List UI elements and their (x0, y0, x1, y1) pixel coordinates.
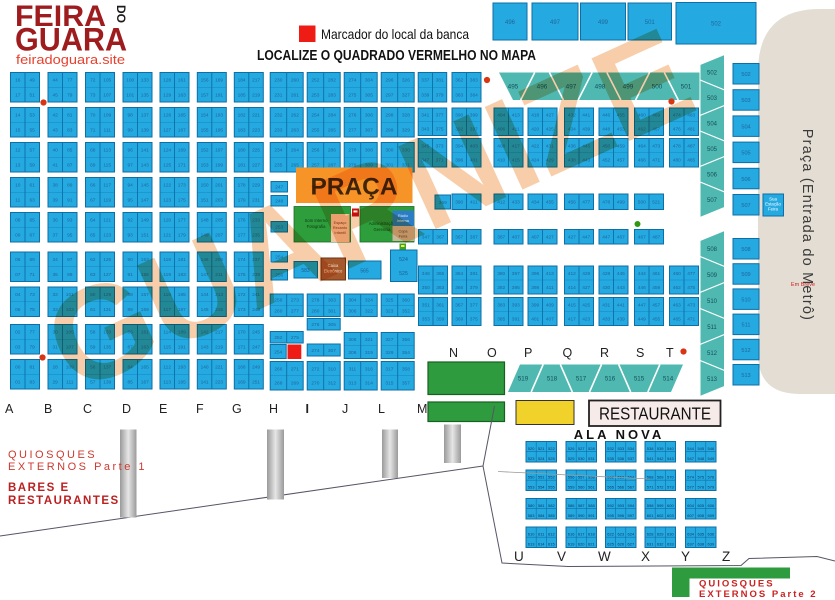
svg-text:Praça (Entrada do Metrô): Praça (Entrada do Metrô) (799, 129, 815, 321)
svg-text:73: 73 (90, 92, 96, 98)
svg-text:168: 168 (238, 365, 246, 371)
svg-text:603: 603 (667, 513, 674, 518)
svg-text:81: 81 (30, 365, 36, 371)
svg-text:53: 53 (30, 113, 36, 119)
svg-text:154: 154 (201, 113, 209, 119)
svg-text:431: 431 (602, 302, 610, 308)
svg-text:427: 427 (582, 285, 590, 291)
svg-text:59: 59 (30, 162, 36, 168)
svg-text:232: 232 (274, 113, 282, 119)
svg-text:260: 260 (291, 78, 299, 84)
svg-text:55: 55 (30, 127, 36, 133)
svg-text:447: 447 (582, 235, 590, 241)
svg-text:274: 274 (348, 78, 356, 84)
svg-text:524: 524 (538, 456, 545, 461)
svg-text:97: 97 (67, 257, 73, 263)
svg-text:591: 591 (588, 513, 595, 518)
svg-text:38: 38 (53, 183, 59, 189)
svg-text:365: 365 (436, 271, 444, 277)
svg-text:183: 183 (238, 127, 246, 133)
svg-text:537: 537 (628, 456, 635, 461)
svg-text:544: 544 (687, 446, 694, 451)
svg-text:171: 171 (178, 162, 186, 168)
svg-text:460: 460 (673, 271, 681, 277)
svg-text:475: 475 (687, 285, 695, 291)
svg-text:LOCALIZE O QUADRADO VERMELHO N: LOCALIZE O QUADRADO VERMELHO NO MAPA (257, 48, 536, 64)
svg-text:551: 551 (538, 474, 545, 479)
svg-text:387: 387 (497, 235, 505, 241)
svg-text:135: 135 (141, 92, 149, 98)
svg-text:543: 543 (667, 456, 674, 461)
svg-text:235: 235 (274, 162, 282, 168)
svg-text:44: 44 (53, 78, 59, 84)
svg-text:95: 95 (128, 197, 134, 203)
svg-text:529: 529 (568, 456, 575, 461)
svg-text:566: 566 (617, 485, 624, 490)
svg-text:F: F (196, 402, 204, 416)
svg-text:193: 193 (215, 113, 223, 119)
svg-text:13: 13 (15, 162, 21, 168)
svg-text:65: 65 (90, 232, 96, 238)
svg-text:521: 521 (652, 200, 660, 206)
svg-text:305: 305 (365, 92, 373, 98)
svg-text:611: 611 (538, 531, 545, 536)
svg-text:57: 57 (30, 148, 36, 154)
svg-text:M: M (417, 402, 427, 416)
svg-text:503: 503 (741, 98, 750, 104)
svg-text:326: 326 (402, 78, 410, 84)
svg-text:325: 325 (385, 297, 393, 303)
svg-text:512: 512 (741, 348, 750, 354)
svg-text:263: 263 (291, 127, 299, 133)
svg-text:515: 515 (634, 376, 645, 383)
svg-text:269: 269 (291, 381, 299, 387)
svg-text:353: 353 (422, 316, 430, 322)
svg-text:07: 07 (15, 272, 21, 278)
svg-text:98: 98 (128, 113, 134, 119)
svg-text:12: 12 (15, 148, 21, 154)
svg-text:09: 09 (15, 232, 21, 238)
svg-text:201: 201 (215, 183, 223, 189)
svg-text:311: 311 (349, 366, 357, 372)
svg-text:72: 72 (90, 78, 96, 84)
svg-text:231: 231 (274, 92, 282, 98)
svg-text:163: 163 (178, 92, 186, 98)
svg-text:446: 446 (638, 285, 646, 291)
svg-text:D: D (122, 402, 131, 416)
svg-text:512: 512 (707, 351, 718, 357)
svg-text:180: 180 (238, 148, 246, 154)
svg-text:143: 143 (141, 162, 149, 168)
svg-text:10: 10 (15, 183, 21, 189)
svg-text:396: 396 (531, 271, 539, 277)
svg-text:123: 123 (163, 197, 171, 203)
svg-text:113: 113 (103, 148, 111, 154)
svg-text:364: 364 (455, 271, 463, 277)
svg-text:101: 101 (126, 92, 134, 98)
svg-text:92: 92 (128, 218, 134, 224)
svg-text:526: 526 (568, 446, 575, 451)
svg-text:427: 427 (568, 235, 576, 241)
svg-text:381: 381 (436, 78, 444, 84)
svg-text:339: 339 (421, 92, 429, 98)
svg-text:433: 433 (602, 316, 610, 322)
svg-text:398: 398 (531, 285, 539, 291)
svg-text:598: 598 (647, 503, 654, 508)
svg-text:96: 96 (128, 148, 134, 154)
svg-text:317: 317 (385, 366, 393, 372)
svg-text:91: 91 (67, 197, 73, 203)
svg-text:375: 375 (470, 316, 478, 322)
svg-text:329: 329 (385, 350, 393, 356)
svg-text:383: 383 (497, 302, 505, 308)
svg-text:05: 05 (15, 307, 21, 313)
svg-text:508: 508 (741, 247, 750, 253)
svg-text:199: 199 (215, 162, 223, 168)
svg-text:381: 381 (470, 271, 478, 277)
svg-text:625: 625 (607, 542, 614, 547)
svg-text:502: 502 (741, 72, 750, 78)
svg-text:542: 542 (657, 456, 664, 461)
svg-text:RESTAURANTE: RESTAURANTE (599, 404, 711, 424)
svg-text:02: 02 (15, 330, 21, 336)
svg-text:511: 511 (707, 325, 717, 331)
svg-text:583: 583 (528, 513, 535, 518)
svg-text:430: 430 (602, 285, 610, 291)
svg-text:06: 06 (15, 257, 21, 263)
svg-text:586: 586 (568, 503, 575, 508)
svg-text:554: 554 (538, 485, 545, 490)
svg-text:584: 584 (538, 513, 545, 518)
svg-text:599: 599 (657, 503, 664, 508)
svg-text:U: U (514, 549, 524, 564)
svg-text:455: 455 (652, 316, 660, 322)
svg-text:428: 428 (602, 271, 610, 277)
svg-text:Z: Z (722, 549, 730, 564)
svg-text:117: 117 (103, 183, 111, 189)
svg-text:385: 385 (497, 316, 505, 322)
svg-text:477: 477 (582, 200, 590, 206)
svg-text:462: 462 (673, 285, 681, 291)
svg-text:161: 161 (178, 78, 186, 84)
svg-text:617: 617 (578, 531, 585, 536)
svg-text:111: 111 (104, 127, 112, 133)
svg-text:01: 01 (15, 379, 21, 385)
svg-text:407: 407 (531, 235, 539, 241)
svg-text:126: 126 (163, 113, 171, 119)
svg-text:552: 552 (548, 474, 555, 479)
svg-text:604: 604 (687, 503, 694, 508)
svg-text:522: 522 (548, 446, 555, 451)
svg-text:514: 514 (663, 376, 674, 383)
svg-text:425: 425 (582, 302, 590, 308)
svg-text:615: 615 (548, 542, 555, 547)
svg-text:550: 550 (528, 474, 535, 479)
svg-text:150: 150 (201, 183, 209, 189)
svg-text:513: 513 (741, 373, 750, 379)
svg-text:506: 506 (707, 173, 718, 179)
svg-text:195: 195 (215, 127, 223, 133)
svg-text:119: 119 (103, 197, 111, 203)
svg-text:254: 254 (274, 349, 282, 355)
svg-text:496: 496 (505, 20, 516, 26)
svg-text:509: 509 (741, 272, 750, 278)
svg-text:632: 632 (657, 542, 664, 547)
svg-text:528: 528 (588, 446, 595, 451)
svg-text:487: 487 (652, 235, 660, 241)
svg-text:366: 366 (455, 285, 463, 291)
svg-text:67: 67 (30, 232, 36, 238)
svg-text:152: 152 (201, 148, 209, 154)
svg-text:29: 29 (53, 379, 59, 385)
svg-text:623: 623 (617, 531, 624, 536)
svg-text:587: 587 (578, 503, 585, 508)
svg-text:631: 631 (647, 542, 654, 547)
svg-text:83: 83 (67, 127, 73, 133)
svg-text:71: 71 (30, 272, 36, 278)
svg-text:357: 357 (402, 381, 410, 387)
svg-text:189: 189 (215, 78, 223, 84)
svg-text:L: L (378, 402, 385, 416)
svg-text:39: 39 (53, 197, 59, 203)
svg-text:270: 270 (311, 381, 319, 387)
svg-text:635: 635 (697, 531, 704, 536)
svg-text:459: 459 (652, 285, 660, 291)
svg-text:637: 637 (687, 542, 694, 547)
svg-text:314: 314 (365, 381, 373, 387)
svg-text:125: 125 (163, 162, 171, 168)
svg-text:17: 17 (15, 92, 21, 98)
svg-text:559: 559 (568, 485, 575, 490)
svg-text:520: 520 (528, 446, 535, 451)
svg-text:79: 79 (30, 344, 36, 350)
svg-text:223: 223 (252, 127, 260, 133)
svg-text:feiradoguara.site: feiradoguara.site (16, 52, 125, 67)
svg-text:613: 613 (528, 542, 535, 547)
svg-text:251: 251 (252, 379, 260, 385)
svg-text:195: 195 (178, 379, 186, 385)
svg-text:575: 575 (697, 474, 704, 479)
svg-text:316: 316 (365, 366, 373, 372)
svg-text:534: 534 (628, 446, 635, 451)
svg-text:261: 261 (291, 92, 299, 98)
svg-text:533: 533 (617, 446, 624, 451)
svg-text:503: 503 (707, 96, 718, 102)
svg-text:37: 37 (53, 232, 59, 238)
svg-text:DO: DO (114, 5, 128, 23)
svg-text:173: 173 (178, 183, 186, 189)
svg-text:577: 577 (687, 485, 694, 490)
svg-text:521: 521 (538, 446, 545, 451)
svg-text:321: 321 (365, 337, 373, 343)
svg-text:306: 306 (348, 350, 356, 356)
svg-text:358: 358 (402, 366, 410, 372)
svg-text:327: 327 (385, 337, 393, 343)
svg-text:277: 277 (348, 127, 356, 133)
svg-text:255: 255 (311, 127, 319, 133)
svg-text:352: 352 (402, 309, 410, 315)
svg-text:337: 337 (421, 78, 429, 84)
svg-text:68: 68 (90, 148, 96, 154)
svg-text:122: 122 (163, 183, 171, 189)
svg-text:612: 612 (548, 531, 555, 536)
svg-text:477: 477 (687, 271, 695, 277)
svg-text:444: 444 (638, 271, 646, 277)
svg-text:221: 221 (215, 365, 223, 371)
svg-text:541: 541 (647, 456, 654, 461)
svg-text:107: 107 (103, 92, 111, 98)
svg-text:369: 369 (455, 316, 463, 322)
svg-text:439: 439 (617, 316, 625, 322)
svg-text:217: 217 (252, 78, 260, 84)
svg-text:45: 45 (53, 92, 59, 98)
svg-text:379: 379 (470, 285, 478, 291)
svg-text:629: 629 (657, 531, 664, 536)
svg-text:223: 223 (215, 379, 223, 385)
svg-text:69: 69 (90, 162, 96, 168)
svg-text:601: 601 (647, 513, 654, 518)
svg-text:536: 536 (617, 456, 624, 461)
svg-text:569: 569 (657, 474, 664, 479)
svg-text:EXTERNOS Parte 2: EXTERNOS Parte 2 (699, 589, 818, 600)
svg-text:407: 407 (512, 235, 520, 241)
svg-text:93: 93 (67, 218, 73, 224)
svg-text:527: 527 (578, 446, 585, 451)
svg-text:427: 427 (546, 235, 554, 241)
svg-text:42: 42 (53, 113, 59, 119)
svg-text:81: 81 (67, 113, 73, 119)
svg-text:348: 348 (422, 271, 430, 277)
svg-text:R: R (600, 346, 609, 360)
svg-text:447: 447 (602, 235, 610, 241)
svg-text:T: T (666, 346, 674, 360)
svg-text:100: 100 (126, 78, 134, 84)
svg-text:525: 525 (548, 456, 555, 461)
svg-text:08: 08 (15, 218, 21, 224)
svg-text:133: 133 (141, 78, 149, 84)
svg-text:139: 139 (141, 127, 149, 133)
svg-text:175: 175 (178, 197, 186, 203)
svg-text:ALA NOVA: ALA NOVA (574, 427, 664, 442)
svg-text:597: 597 (628, 513, 635, 518)
svg-text:636: 636 (708, 531, 715, 536)
svg-text:626: 626 (617, 542, 624, 547)
svg-text:121: 121 (103, 218, 111, 224)
svg-text:401: 401 (531, 316, 539, 322)
svg-text:510: 510 (741, 297, 750, 303)
svg-text:219: 219 (252, 92, 260, 98)
svg-text:Em Breve: Em Breve (791, 282, 815, 288)
svg-text:128: 128 (163, 78, 171, 84)
svg-text:157: 157 (201, 92, 209, 98)
svg-text:367: 367 (455, 302, 463, 308)
svg-text:510: 510 (707, 299, 718, 305)
svg-text:411: 411 (546, 285, 554, 291)
svg-text:275: 275 (291, 335, 299, 341)
svg-text:596: 596 (617, 513, 624, 518)
svg-text:264: 264 (291, 148, 299, 154)
svg-text:137: 137 (141, 113, 149, 119)
svg-text:621: 621 (588, 542, 595, 547)
svg-text:153: 153 (201, 162, 209, 168)
svg-text:548: 548 (697, 456, 704, 461)
svg-text:457: 457 (652, 302, 660, 308)
svg-text:J: J (342, 402, 348, 416)
svg-text:EXTERNOS Parte 1: EXTERNOS Parte 1 (8, 461, 147, 473)
svg-text:85: 85 (67, 148, 73, 154)
svg-text:518: 518 (547, 376, 558, 383)
svg-text:608: 608 (697, 513, 704, 518)
svg-text:36: 36 (53, 218, 59, 224)
svg-text:507: 507 (741, 203, 750, 209)
svg-text:576: 576 (708, 474, 715, 479)
svg-text:296: 296 (385, 78, 393, 84)
svg-text:508: 508 (707, 247, 718, 253)
svg-text:633: 633 (667, 542, 674, 547)
svg-text:540: 540 (667, 446, 674, 451)
svg-text:233: 233 (274, 127, 282, 133)
svg-text:234: 234 (274, 148, 282, 154)
svg-text:11: 11 (15, 197, 20, 203)
svg-text:594: 594 (628, 503, 635, 508)
svg-text:361: 361 (436, 302, 444, 308)
svg-text:628: 628 (647, 531, 654, 536)
svg-text:83: 83 (30, 379, 36, 385)
svg-text:A: A (5, 402, 14, 416)
svg-text:461: 461 (652, 271, 660, 277)
svg-text:447: 447 (638, 302, 646, 308)
svg-text:539: 539 (657, 446, 664, 451)
svg-text:619: 619 (568, 542, 575, 547)
svg-text:560: 560 (578, 485, 585, 490)
svg-text:441: 441 (617, 302, 625, 308)
svg-text:262: 262 (291, 113, 299, 119)
svg-text:184: 184 (238, 78, 246, 84)
svg-text:71: 71 (90, 127, 96, 133)
svg-text:252: 252 (311, 78, 319, 84)
svg-text:115: 115 (103, 162, 111, 168)
svg-text:618: 618 (588, 531, 595, 536)
svg-text:282: 282 (328, 78, 336, 84)
svg-text:77: 77 (30, 330, 36, 336)
svg-text:585: 585 (548, 513, 555, 518)
svg-text:306: 306 (348, 309, 356, 315)
svg-text:561: 561 (588, 485, 595, 490)
svg-text:274: 274 (311, 348, 319, 354)
svg-text:578: 578 (697, 485, 704, 490)
svg-text:323: 323 (385, 309, 393, 315)
svg-text:V: V (557, 549, 566, 564)
svg-text:S: S (636, 346, 644, 360)
svg-text:285: 285 (328, 127, 336, 133)
svg-text:63: 63 (30, 197, 36, 203)
svg-text:W: W (598, 549, 611, 564)
svg-text:169: 169 (178, 148, 186, 154)
svg-text:79: 79 (67, 92, 73, 98)
svg-text:284: 284 (328, 113, 336, 119)
svg-text:97: 97 (128, 162, 134, 168)
svg-text:589: 589 (568, 513, 575, 518)
svg-text:463: 463 (673, 302, 681, 308)
svg-text:363: 363 (436, 285, 444, 291)
svg-text:620: 620 (578, 542, 585, 547)
svg-text:638: 638 (697, 542, 704, 547)
svg-text:572: 572 (657, 485, 664, 490)
svg-text:606: 606 (708, 503, 715, 508)
svg-text:351: 351 (422, 302, 430, 308)
svg-text:P: P (524, 346, 532, 360)
svg-text:167: 167 (178, 127, 186, 133)
